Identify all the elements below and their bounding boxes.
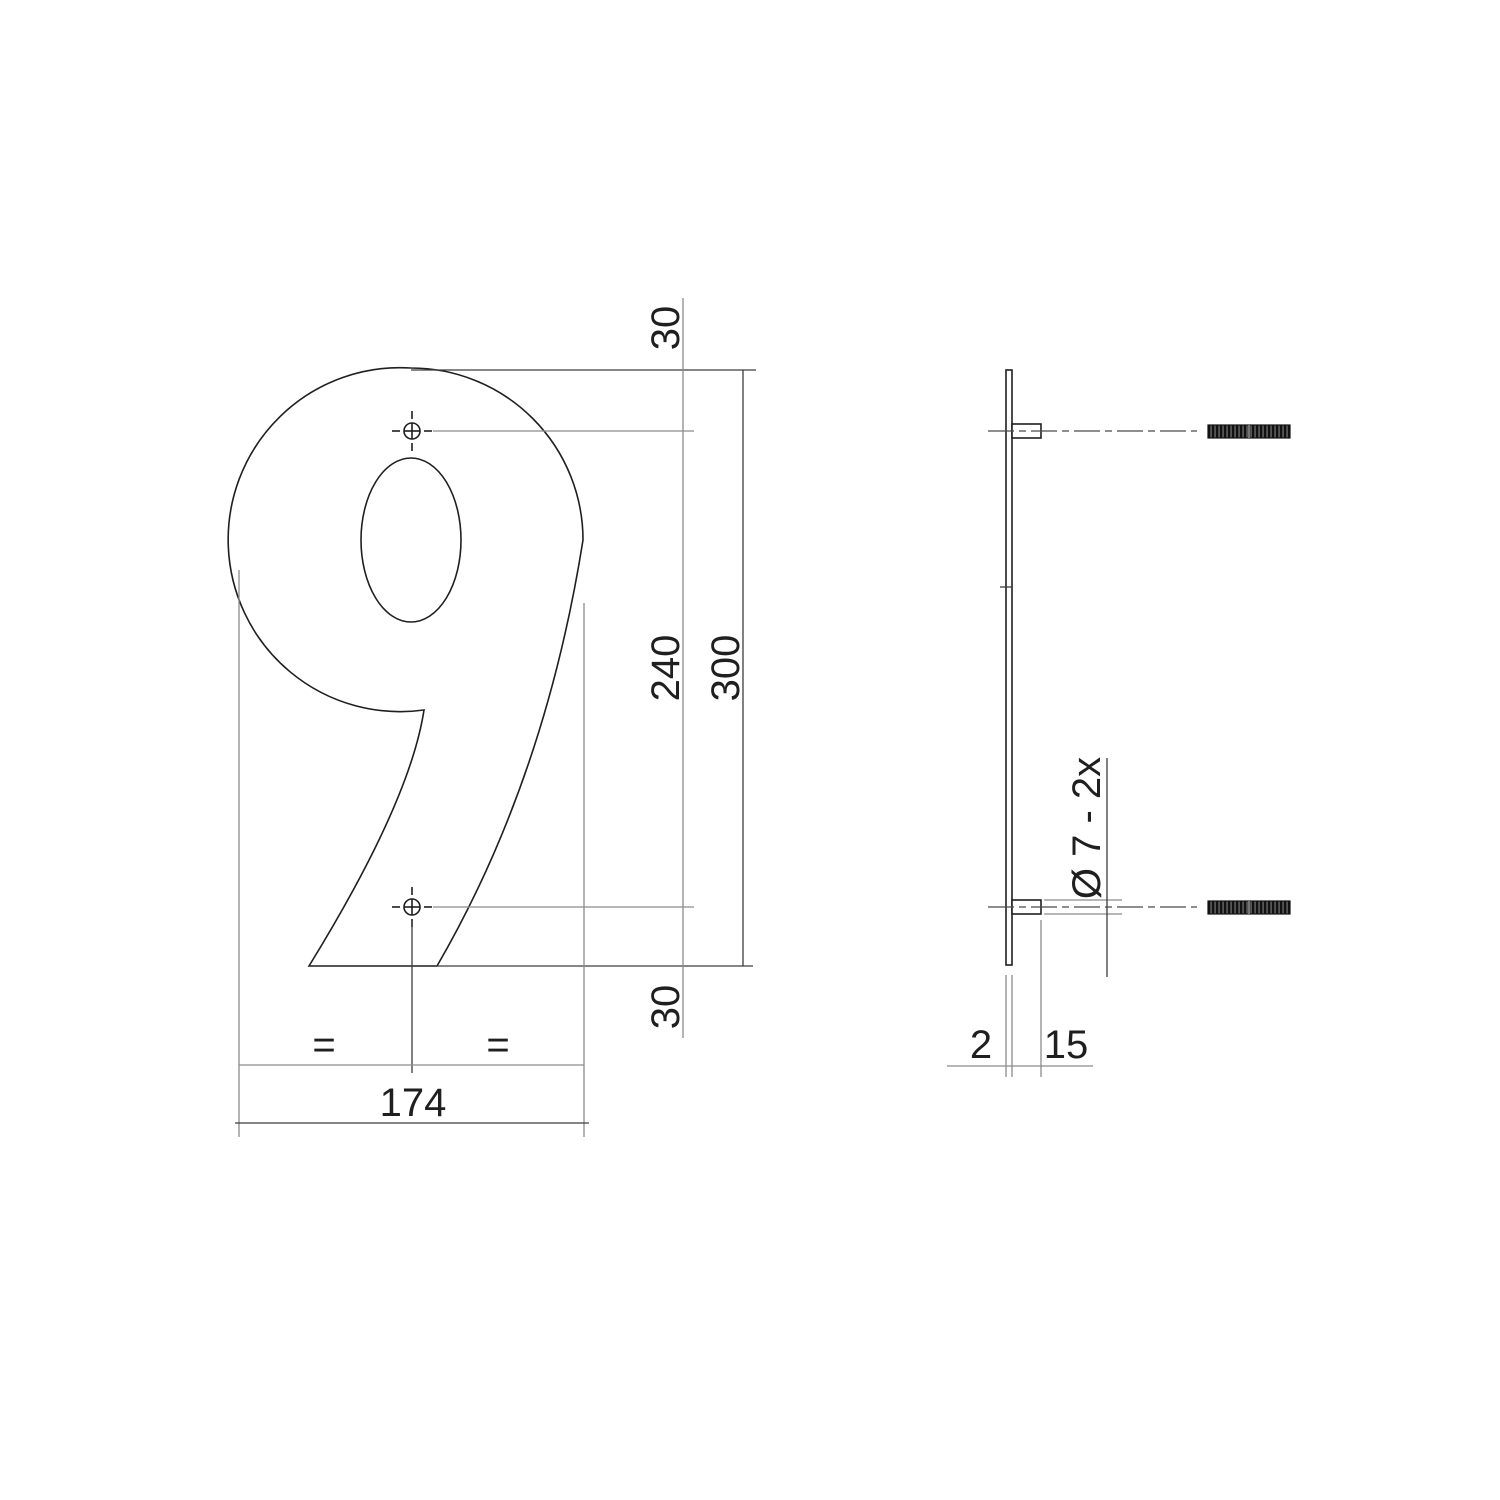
threaded-rod-top <box>1208 425 1290 438</box>
label-equal-left: = <box>312 1023 335 1067</box>
label-hole-note: Ø 7 - 2x <box>1065 757 1109 899</box>
drawing-svg: 9 <box>0 0 1500 1500</box>
side-view: Ø 7 - 2x 2 15 <box>947 370 1290 1077</box>
label-top-offset-30: 30 <box>644 306 688 351</box>
front-view: 9 <box>228 298 756 1137</box>
label-pin-length-15: 15 <box>1044 1023 1089 1067</box>
numeral-9-shape: 9 <box>228 368 583 966</box>
plate-profile <box>1006 370 1012 965</box>
technical-drawing-canvas: 9 <box>0 0 1500 1500</box>
label-hole-spacing-240: 240 <box>644 635 688 702</box>
numeral-9-outline <box>228 368 583 966</box>
label-overall-height-300: 300 <box>704 635 748 702</box>
label-overall-width-174: 174 <box>380 1081 447 1125</box>
threaded-rod-bottom <box>1208 901 1290 914</box>
label-thickness-2: 2 <box>970 1023 992 1067</box>
label-equal-right: = <box>486 1023 509 1067</box>
label-bottom-offset-30: 30 <box>644 985 688 1030</box>
